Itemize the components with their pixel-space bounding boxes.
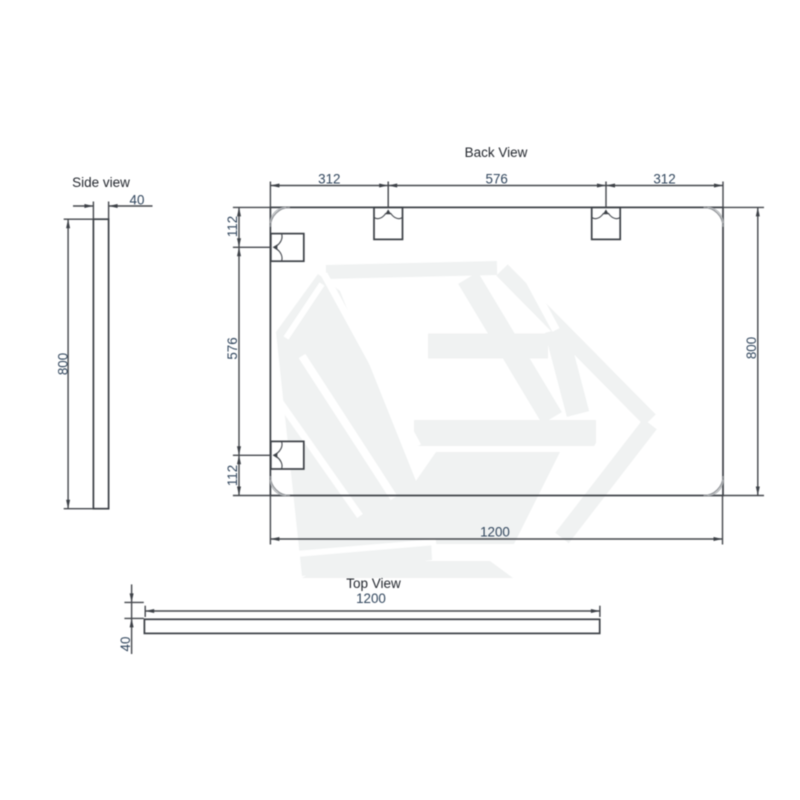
svg-text:800: 800 [56,353,71,375]
svg-text:Top View: Top View [346,576,401,591]
svg-text:1200: 1200 [480,525,510,540]
svg-text:312: 312 [653,172,675,187]
svg-text:40: 40 [118,637,133,652]
svg-text:112: 112 [225,216,240,237]
svg-text:112: 112 [225,465,240,486]
svg-text:800: 800 [744,337,759,359]
svg-text:Side view: Side view [72,175,130,190]
svg-text:1200: 1200 [356,591,386,606]
svg-text:Back View: Back View [465,145,528,160]
svg-text:40: 40 [130,193,145,208]
svg-text:312: 312 [318,172,340,187]
svg-text:576: 576 [225,337,240,359]
svg-text:576: 576 [486,172,508,187]
